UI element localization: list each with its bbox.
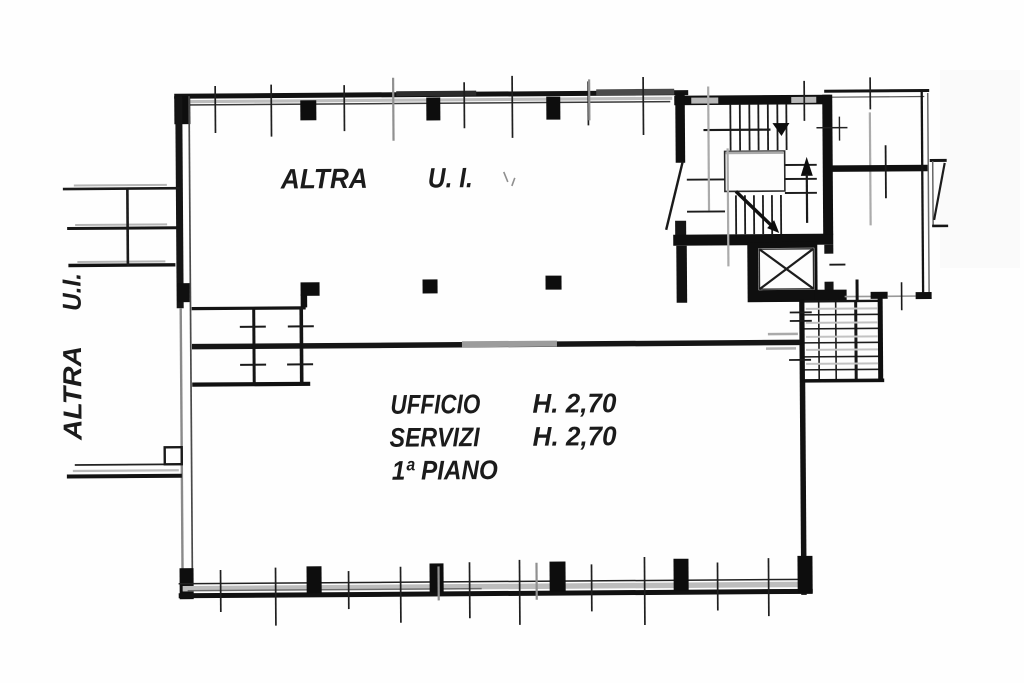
svg-text:H. 2,70: H. 2,70 bbox=[533, 421, 617, 452]
svg-text:1ª PIANO: 1ª PIANO bbox=[392, 455, 498, 486]
svg-text:SERVIZI: SERVIZI bbox=[390, 422, 481, 453]
svg-text:U.I.: U.I. bbox=[56, 273, 86, 311]
svg-text:U. I.: U. I. bbox=[428, 162, 473, 193]
svg-text:UFFICIO: UFFICIO bbox=[390, 389, 480, 420]
svg-text:H. 2,70: H. 2,70 bbox=[532, 388, 616, 419]
svg-text:ALTRA: ALTRA bbox=[280, 163, 368, 195]
svg-text:ALTRA: ALTRA bbox=[57, 346, 88, 441]
